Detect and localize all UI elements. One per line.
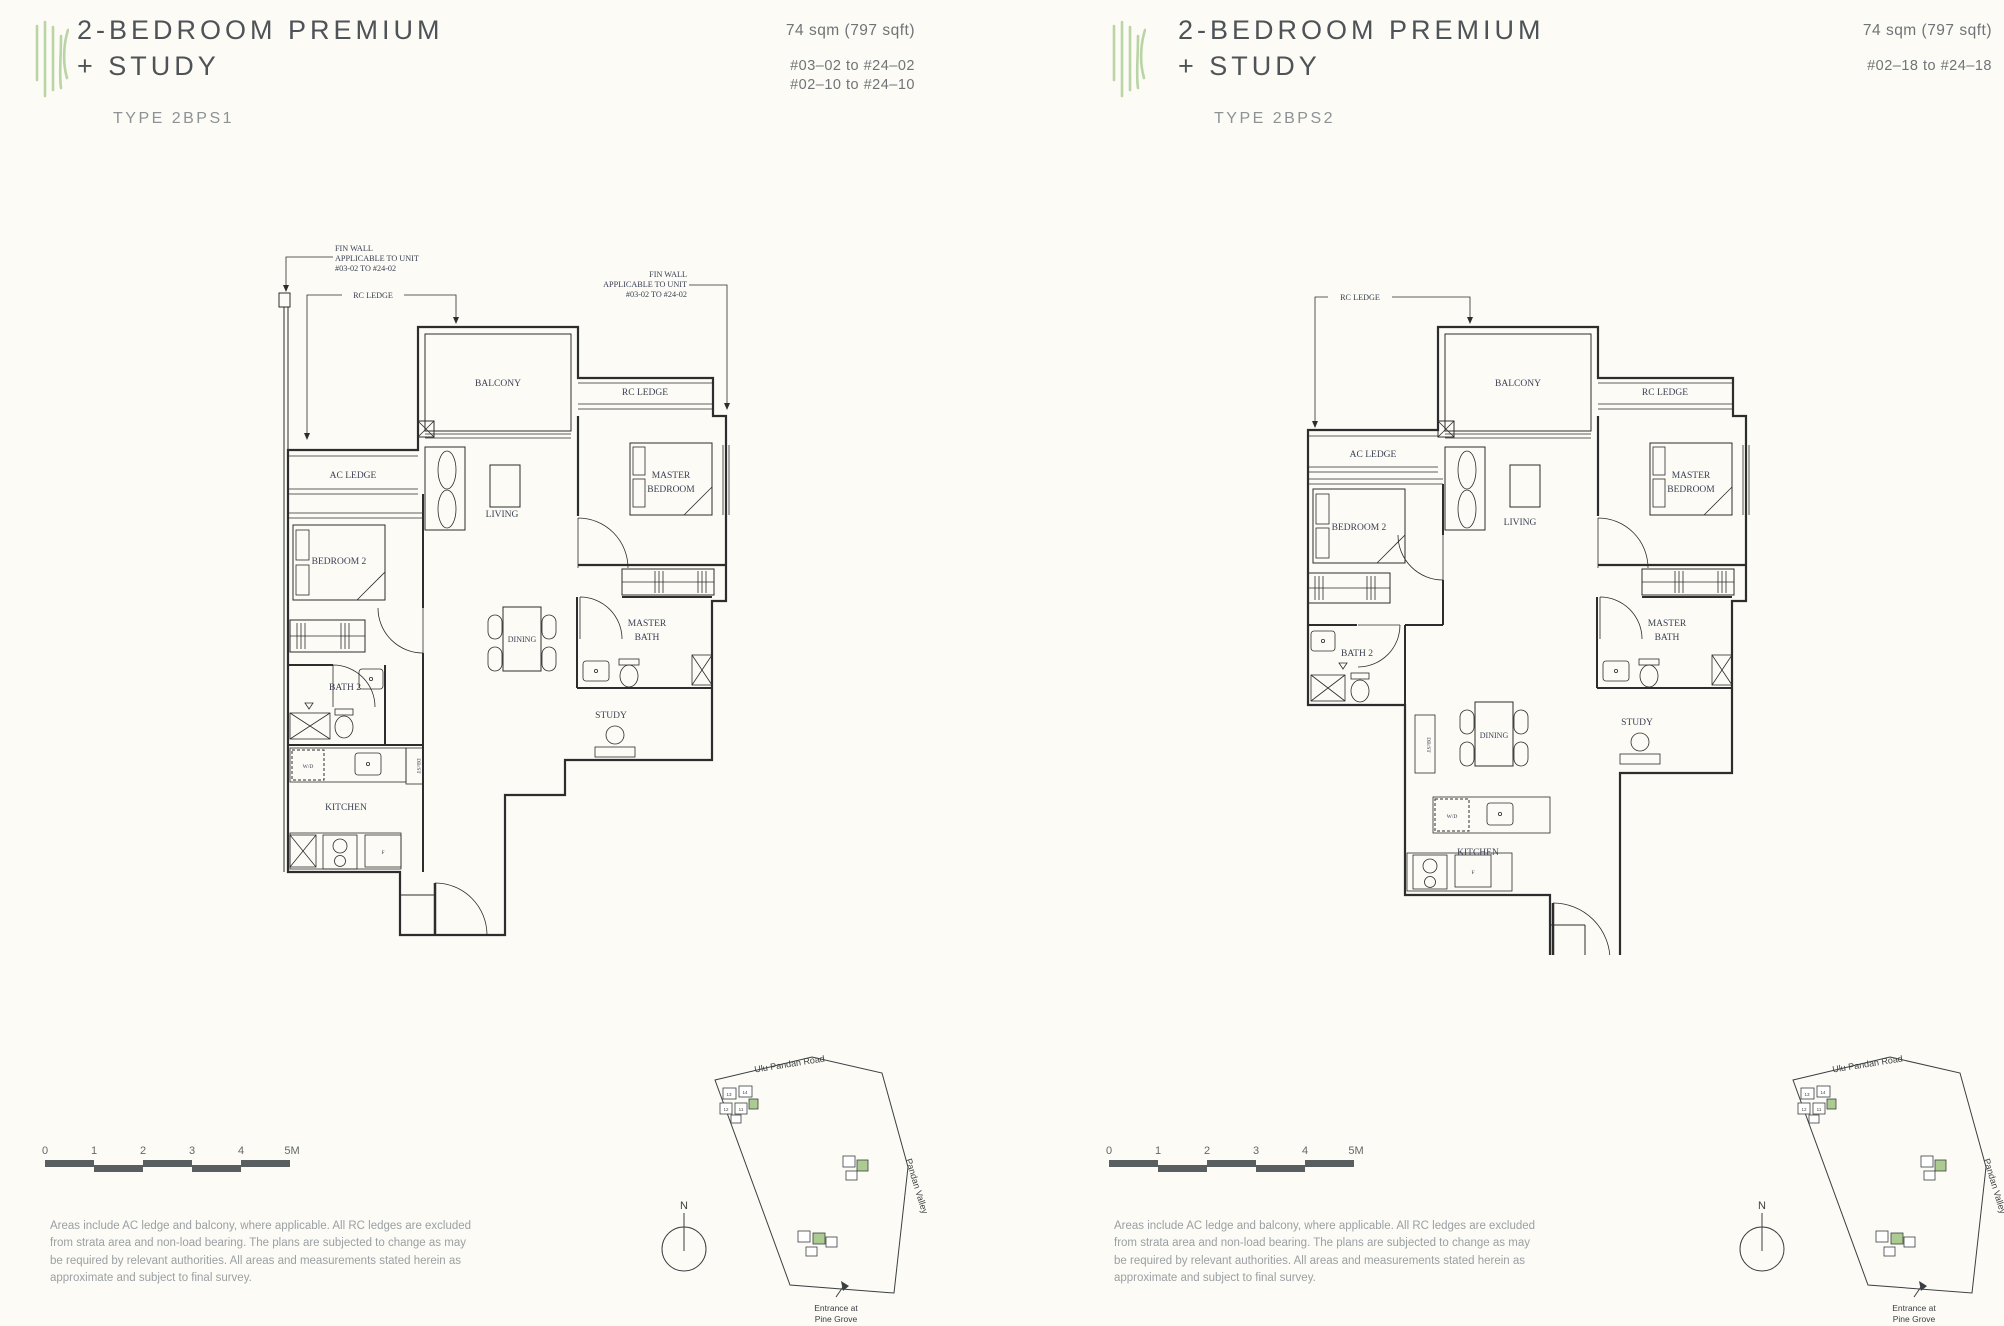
valley-label: Pandan Valley [1982, 1157, 2004, 1215]
room-label-master-bedroom: MASTER [652, 471, 691, 481]
floor-plan-2bps1: FIN WALL APPLICABLE TO UNIT #03-02 TO #2… [275, 235, 785, 955]
floor-plan-2bps2: RC LEDGE BALCONY RC LEDGE AC LEDGE LIVIN… [1295, 235, 1805, 955]
unit-meta: 74 sqm (797 sqft) #03–02 to #24–02 #02–1… [786, 22, 915, 95]
callout-fin-wall-right: APPLICABLE TO UNIT [603, 280, 687, 289]
floorplan-brochure-page: 2-BEDROOM PREMIUM + STUDY TYPE 2BPS1 74 … [0, 0, 2004, 1326]
unit-title-line1: 2-BEDROOM PREMIUM [1178, 12, 1545, 48]
room-label-living: LIVING [1504, 518, 1537, 528]
building-number: 13 [1804, 1092, 1810, 1097]
leader-arrow [1467, 317, 1473, 324]
entrance-label: Entrance at [1892, 1303, 1936, 1313]
scale-tick-label: 1 [1155, 1145, 1161, 1157]
scale-tick-label: 4 [238, 1145, 244, 1157]
room-label-dining: DINING [508, 635, 537, 644]
scale-tick-label: 2 [1204, 1145, 1210, 1157]
building-number: 12 [1801, 1107, 1807, 1112]
scale-tick-label: 0 [1106, 1145, 1112, 1157]
unit-range: #02–18 to #24–18 [1863, 57, 1992, 76]
room-label-bedroom-2: BEDROOM 2 [312, 557, 367, 567]
leader-arrow [304, 433, 310, 440]
room-label-master-bedroom: MASTER [1672, 471, 1711, 481]
appliance-label-wd: W/D [1447, 814, 1458, 820]
room-label-ac-ledge: AC LEDGE [1350, 450, 1397, 460]
site-map: 13 14 12 11 Ulu Pandan Road Pandan Valle… [640, 1035, 970, 1326]
room-label-rc-ledge: RC LEDGE [1642, 388, 1688, 398]
room-label-master-bedroom: BEDROOM [647, 485, 695, 495]
unit-title: 2-BEDROOM PREMIUM + STUDY [1178, 12, 1545, 84]
entrance-label: Pine Grove [1893, 1314, 1936, 1324]
unit-type-label: TYPE 2BPS2 [1214, 110, 1335, 128]
unit-area: 74 sqm (797 sqft) [786, 22, 915, 40]
room-label-dining: DINING [1480, 731, 1509, 740]
brand-leaf-logo [1110, 20, 1146, 102]
scale-bar: 0 1 2 3 4 5M [1104, 1140, 1364, 1185]
scale-tick-label: 5M [1348, 1145, 1363, 1157]
building-number: 14 [1820, 1090, 1826, 1095]
room-label-master-bath: BATH [1655, 633, 1680, 643]
room-label-ac-ledge: AC LEDGE [330, 471, 377, 481]
room-label-rc-ledge: RC LEDGE [622, 388, 668, 398]
room-label-kitchen: KITCHEN [1457, 848, 1499, 858]
scale-tick-label: 3 [1253, 1145, 1259, 1157]
unit-meta: 74 sqm (797 sqft) #02–18 to #24–18 [1863, 22, 1992, 76]
callout-rc-ledge: RC LEDGE [1340, 293, 1380, 302]
callout-fin-wall-left: APPLICABLE TO UNIT [335, 254, 419, 263]
callout-fin-wall-right: FIN WALL [649, 270, 687, 279]
appliance-label-dbst: DB/ST [415, 758, 421, 774]
scale-tick-label: 5M [284, 1145, 299, 1157]
unit-type-label: TYPE 2BPS1 [113, 110, 234, 128]
building-number: 11 [1817, 1107, 1822, 1112]
appliance-label-fridge: F [381, 850, 384, 856]
unit-range: #03–02 to #24–02 [786, 57, 915, 76]
callout-fin-wall-left: #03-02 TO #24-02 [335, 264, 396, 273]
unit-area: 74 sqm (797 sqft) [1863, 22, 1992, 40]
room-label-study: STUDY [1621, 718, 1653, 728]
room-label-balcony: BALCONY [1495, 379, 1541, 389]
callout-fin-wall-left: FIN WALL [335, 244, 373, 253]
callout-fin-wall-right: #03-02 TO #24-02 [626, 290, 687, 299]
room-label-kitchen: KITCHEN [325, 803, 367, 813]
road-label: Ulu Pandan Road [1832, 1054, 1904, 1075]
unit-range: #02–10 to #24–10 [786, 76, 915, 95]
room-label-bath-2: BATH 2 [329, 683, 361, 693]
road-label: Ulu Pandan Road [754, 1054, 826, 1075]
room-label-study: STUDY [595, 711, 627, 721]
valley-label: Pandan Valley [904, 1157, 930, 1215]
building-number: 13 [726, 1092, 732, 1097]
appliance-label-wd: W/D [303, 764, 314, 770]
scale-tick-label: 4 [1302, 1145, 1308, 1157]
unit-title-line1: 2-BEDROOM PREMIUM [77, 12, 444, 48]
room-label-balcony: BALCONY [475, 379, 521, 389]
entrance-label: Entrance at [814, 1303, 858, 1313]
room-label-master-bath: MASTER [628, 619, 667, 629]
disclaimer-text: Areas include AC ledge and balcony, wher… [50, 1218, 474, 1288]
building-number: 12 [723, 1107, 729, 1112]
unit-title: 2-BEDROOM PREMIUM + STUDY [77, 12, 444, 84]
brand-leaf-logo [33, 20, 69, 102]
building-number: 11 [739, 1107, 744, 1112]
appliance-label-dbst: DB/ST [1425, 737, 1431, 753]
scale-tick-label: 0 [42, 1145, 48, 1157]
room-label-bedroom-2: BEDROOM 2 [1332, 523, 1387, 533]
leader-arrow [283, 285, 289, 292]
room-label-master-bedroom: BEDROOM [1667, 485, 1715, 495]
unit-title-line2: + STUDY [77, 48, 444, 84]
north-indicator: N [1758, 1200, 1766, 1212]
unit-title-line2: + STUDY [1178, 48, 1545, 84]
scale-tick-label: 3 [189, 1145, 195, 1157]
leader-arrow [453, 317, 459, 324]
building-number: 14 [742, 1090, 748, 1095]
north-indicator: N [680, 1200, 688, 1212]
scale-bar: 0 1 2 3 4 5M [40, 1140, 300, 1185]
callout-rc-ledge: RC LEDGE [353, 291, 393, 300]
room-label-master-bath: MASTER [1648, 619, 1687, 629]
disclaimer-text: Areas include AC ledge and balcony, wher… [1114, 1218, 1538, 1288]
entrance-label: Pine Grove [815, 1314, 858, 1324]
room-label-living: LIVING [486, 510, 519, 520]
appliance-label-fridge: F [1471, 870, 1474, 876]
scale-tick-label: 1 [91, 1145, 97, 1157]
site-map: 13 14 12 11 Ulu Pandan Road Pandan Valle… [1718, 1035, 2004, 1326]
leader-arrow [1312, 421, 1318, 428]
room-label-master-bath: BATH [635, 633, 660, 643]
leader-arrow [724, 403, 730, 410]
scale-tick-label: 2 [140, 1145, 146, 1157]
room-label-bath-2: BATH 2 [1341, 649, 1373, 659]
